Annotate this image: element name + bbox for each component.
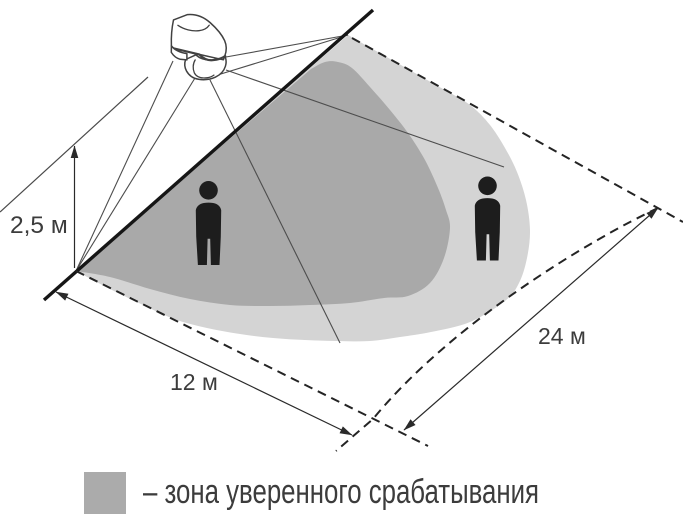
svg-text:12 м: 12 м [170,369,218,395]
svg-text:2,5 м: 2,5 м [10,212,68,239]
svg-text:– зона уверенного срабатывания: – зона уверенного срабатывания [143,473,539,511]
svg-text:24 м: 24 м [538,323,586,349]
